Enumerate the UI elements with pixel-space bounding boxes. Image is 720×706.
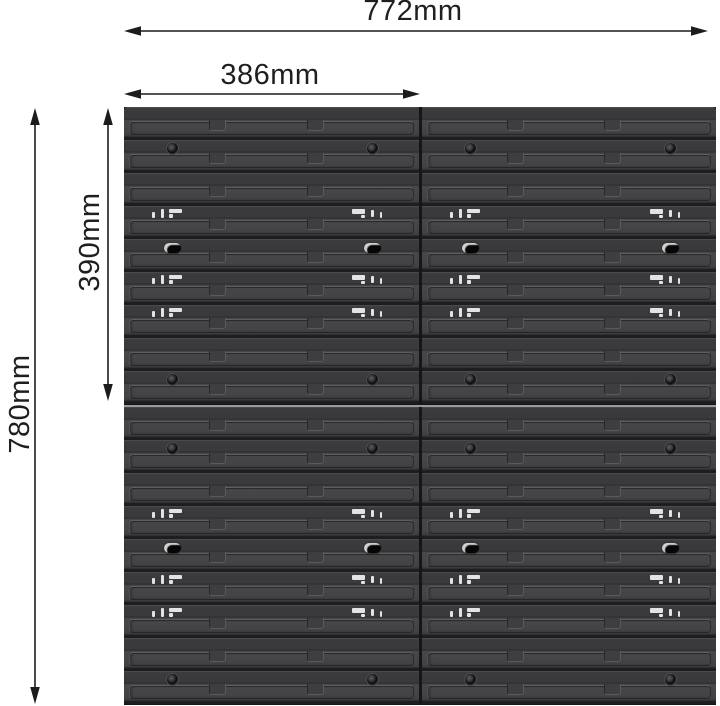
slat-groove xyxy=(129,319,414,333)
clip-highlight-group xyxy=(650,207,690,219)
screw-hole xyxy=(367,374,378,385)
keyhole-slot xyxy=(164,543,181,553)
clip-highlight xyxy=(169,580,173,584)
slat-notch xyxy=(209,219,226,230)
slat-plain xyxy=(124,473,419,506)
slat-screws xyxy=(422,671,717,704)
keyhole-slot xyxy=(164,243,181,253)
clip-highlight xyxy=(169,280,173,284)
keyhole-slot xyxy=(462,543,479,553)
slat-notch xyxy=(209,585,226,596)
clip-highlight xyxy=(371,609,374,616)
clip-highlight xyxy=(352,608,365,613)
slat-groove xyxy=(427,421,712,435)
slat-notch xyxy=(604,585,621,596)
slat-screws xyxy=(124,671,419,704)
slat-groove xyxy=(427,520,712,534)
clip-highlight xyxy=(669,576,672,583)
slat-plain xyxy=(422,338,717,371)
slat-notch xyxy=(209,552,226,563)
clip-highlight xyxy=(467,613,471,617)
slat-notch xyxy=(209,453,226,464)
slat-groove xyxy=(129,685,414,699)
screw-hole xyxy=(665,674,676,685)
slat-notch xyxy=(604,684,621,695)
clip-highlight xyxy=(669,276,672,283)
slat-groove xyxy=(427,652,712,666)
slat-notch xyxy=(209,186,226,197)
screw-hole xyxy=(465,674,476,685)
slat-clips xyxy=(124,605,419,638)
slat-notch xyxy=(307,453,324,464)
slat-notch xyxy=(209,285,226,296)
slat-notch xyxy=(307,318,324,329)
clip-highlight xyxy=(678,278,680,284)
slat-clips xyxy=(422,572,717,605)
slat-screws xyxy=(124,371,419,404)
slat-groove xyxy=(427,385,712,399)
panel-plate xyxy=(422,407,717,704)
slat-notch xyxy=(507,351,524,362)
clip-highlight xyxy=(459,275,462,284)
mounting-tab xyxy=(124,374,125,382)
slat-notch xyxy=(209,519,226,530)
clip-highlight xyxy=(659,215,663,218)
slat-groove xyxy=(427,253,712,267)
slat-groove xyxy=(129,553,414,567)
slat-notch xyxy=(209,618,226,629)
slat-notch xyxy=(307,618,324,629)
slat-notch xyxy=(307,186,324,197)
clip-highlight xyxy=(361,614,365,617)
slat-clips xyxy=(124,506,419,539)
clip-highlight-group xyxy=(152,606,192,618)
slat-groove xyxy=(129,352,414,366)
clip-highlight xyxy=(371,510,374,517)
clip-highlight-group xyxy=(450,573,490,585)
clip-highlight xyxy=(459,575,462,584)
clip-highlight xyxy=(371,309,374,316)
clip-highlight xyxy=(467,209,480,213)
slat-notch xyxy=(507,384,524,395)
clip-highlight-group xyxy=(650,573,690,585)
slat-notch xyxy=(307,384,324,395)
clip-highlight xyxy=(678,512,680,518)
clip-highlight-group xyxy=(152,507,192,519)
clip-highlight xyxy=(371,576,374,583)
slat-groove xyxy=(129,454,414,468)
clip-highlight xyxy=(380,578,382,584)
clip-highlight xyxy=(169,313,173,317)
slat-groove xyxy=(129,586,414,600)
clip-highlight xyxy=(678,311,680,317)
slat-notch xyxy=(507,120,524,131)
slat-notch xyxy=(307,684,324,695)
total-height-label: 780mm xyxy=(5,314,35,494)
slat-groove xyxy=(427,154,712,168)
clip-highlight xyxy=(450,611,453,617)
clip-highlight xyxy=(161,608,164,617)
slat-notch xyxy=(507,153,524,164)
slat-screws xyxy=(124,440,419,473)
slat-groove xyxy=(427,553,712,567)
clip-highlight xyxy=(467,275,480,279)
clip-highlight xyxy=(650,575,663,580)
clip-highlight xyxy=(152,212,155,218)
clip-highlight xyxy=(669,609,672,616)
keyhole-slot xyxy=(662,543,679,553)
slat-notch xyxy=(604,384,621,395)
slat-notch xyxy=(604,186,621,197)
clip-highlight-group xyxy=(650,273,690,285)
slat-plain xyxy=(422,473,717,506)
clip-highlight-group xyxy=(450,273,490,285)
clip-highlight xyxy=(650,608,663,613)
slat-clips xyxy=(422,206,717,239)
slat-notch xyxy=(307,285,324,296)
clip-highlight xyxy=(659,515,663,518)
clip-highlight-group xyxy=(450,306,490,318)
clip-highlight-group xyxy=(152,573,192,585)
clip-highlight-group xyxy=(152,207,192,219)
clip-highlight xyxy=(161,575,164,584)
screw-hole xyxy=(167,443,178,454)
slat-groove xyxy=(129,187,414,201)
plate-row xyxy=(124,407,716,705)
clip-highlight xyxy=(669,210,672,217)
slat-screws xyxy=(422,371,717,404)
slat-groove xyxy=(129,421,414,435)
slat-slots xyxy=(124,539,419,572)
slat-notch xyxy=(507,552,524,563)
slat-notch xyxy=(604,252,621,263)
product-dimension-diagram: 772mm 386mm 780mm 390mm xyxy=(0,0,720,706)
clip-highlight xyxy=(169,509,182,513)
slat-groove xyxy=(427,619,712,633)
slat-screws xyxy=(422,140,717,173)
slat-notch xyxy=(307,420,324,431)
slat-clips xyxy=(124,206,419,239)
keyhole-slot xyxy=(364,243,381,253)
total-width-label: 772mm xyxy=(323,0,503,26)
clip-highlight xyxy=(459,509,462,518)
screw-hole xyxy=(367,443,378,454)
slat-groove xyxy=(427,187,712,201)
slat-slots xyxy=(422,539,717,572)
slat-slots xyxy=(124,239,419,272)
clip-highlight xyxy=(169,608,182,612)
slat-plain xyxy=(124,638,419,671)
clip-highlight-group xyxy=(450,606,490,618)
mounting-tab xyxy=(124,443,125,451)
slat-clips xyxy=(124,272,419,305)
clip-highlight xyxy=(161,275,164,284)
screw-hole xyxy=(465,443,476,454)
clip-highlight xyxy=(169,275,182,279)
panel-plate xyxy=(124,107,419,404)
clip-highlight xyxy=(450,578,453,584)
slat-notch xyxy=(507,219,524,230)
panel-height-label: 390mm xyxy=(75,152,105,332)
plate-row xyxy=(124,107,716,405)
slat-notch xyxy=(307,252,324,263)
slat-notch xyxy=(507,453,524,464)
slat-notch xyxy=(507,318,524,329)
slat-screws xyxy=(124,140,419,173)
slat-notch xyxy=(604,318,621,329)
clip-highlight xyxy=(352,509,365,514)
slat-groove xyxy=(129,220,414,234)
clip-highlight xyxy=(450,512,453,518)
slat-notch xyxy=(307,585,324,596)
clip-highlight xyxy=(669,510,672,517)
slat-notch xyxy=(507,585,524,596)
slat-groove xyxy=(427,487,712,501)
slat-groove xyxy=(129,253,414,267)
clip-highlight-group xyxy=(152,273,192,285)
slat-groove xyxy=(427,586,712,600)
slat-plain xyxy=(422,107,717,140)
slat-groove xyxy=(427,121,712,135)
slat-notch xyxy=(507,684,524,695)
slat-plain xyxy=(422,638,717,671)
slat-clips xyxy=(422,305,717,338)
clip-highlight xyxy=(678,611,680,617)
slat-plain xyxy=(422,407,717,440)
clip-highlight xyxy=(152,578,155,584)
clip-highlight xyxy=(450,212,453,218)
slat-groove xyxy=(427,319,712,333)
slat-notch xyxy=(507,651,524,662)
slat-groove xyxy=(427,286,712,300)
panel-wall xyxy=(124,107,716,705)
slat-notch xyxy=(209,120,226,131)
clip-highlight xyxy=(169,214,173,218)
slat-notch xyxy=(209,153,226,164)
slat-screws xyxy=(422,440,717,473)
slat-notch xyxy=(507,285,524,296)
slat-notch xyxy=(604,552,621,563)
clip-highlight-group xyxy=(650,606,690,618)
slat-groove xyxy=(427,220,712,234)
slat-plain xyxy=(124,338,419,371)
slat-notch xyxy=(604,285,621,296)
clip-highlight xyxy=(380,512,382,518)
clip-highlight-group xyxy=(352,573,392,585)
slat-groove xyxy=(129,121,414,135)
clip-highlight xyxy=(650,275,663,280)
clip-highlight xyxy=(361,281,365,284)
slat-clips xyxy=(422,506,717,539)
slat-plain xyxy=(422,173,717,206)
slat-notch xyxy=(209,651,226,662)
clip-highlight xyxy=(659,281,663,284)
slat-notch xyxy=(209,318,226,329)
slat-notch xyxy=(307,552,324,563)
clip-highlight xyxy=(352,308,365,313)
clip-highlight-group xyxy=(352,306,392,318)
clip-highlight xyxy=(352,575,365,580)
clip-highlight-group xyxy=(450,507,490,519)
clip-highlight xyxy=(467,509,480,513)
clip-highlight xyxy=(169,613,173,617)
slat-plain xyxy=(124,173,419,206)
slat-notch xyxy=(604,618,621,629)
slat-notch xyxy=(307,153,324,164)
keyhole-slot xyxy=(364,543,381,553)
clip-highlight xyxy=(650,308,663,313)
clip-highlight xyxy=(678,212,680,218)
clip-highlight xyxy=(371,210,374,217)
screw-hole xyxy=(465,374,476,385)
screw-hole xyxy=(167,374,178,385)
slat-notch xyxy=(307,486,324,497)
slat-notch xyxy=(604,519,621,530)
slat-notch xyxy=(507,618,524,629)
slat-notch xyxy=(604,486,621,497)
slat-notch xyxy=(209,420,226,431)
slat-clips xyxy=(124,305,419,338)
slat-notch xyxy=(209,486,226,497)
clip-highlight xyxy=(380,212,382,218)
panel-plate xyxy=(422,107,717,404)
slat-groove xyxy=(427,352,712,366)
slat-groove xyxy=(427,685,712,699)
clip-highlight xyxy=(361,314,365,317)
clip-highlight xyxy=(161,308,164,317)
clip-highlight-group xyxy=(352,507,392,519)
slat-notch xyxy=(604,153,621,164)
slat-notch xyxy=(507,519,524,530)
slat-groove xyxy=(129,154,414,168)
slat-notch xyxy=(307,120,324,131)
clip-highlight xyxy=(169,209,182,213)
clip-highlight xyxy=(450,278,453,284)
screw-hole xyxy=(167,674,178,685)
clip-highlight xyxy=(152,611,155,617)
slat-plain xyxy=(124,107,419,140)
clip-highlight xyxy=(659,614,663,617)
slat-notch xyxy=(209,384,226,395)
clip-highlight xyxy=(352,209,365,214)
slat-notch xyxy=(604,651,621,662)
clip-highlight-group xyxy=(352,207,392,219)
screw-hole xyxy=(665,443,676,454)
slat-notch xyxy=(209,252,226,263)
clip-highlight-group xyxy=(450,207,490,219)
screw-hole xyxy=(367,674,378,685)
clip-highlight xyxy=(678,578,680,584)
screw-hole xyxy=(167,143,178,154)
clip-highlight xyxy=(467,580,471,584)
slat-groove xyxy=(427,454,712,468)
clip-highlight-group xyxy=(352,273,392,285)
slat-clips xyxy=(422,605,717,638)
clip-highlight xyxy=(152,311,155,317)
clip-highlight xyxy=(361,515,365,518)
slat-notch xyxy=(507,420,524,431)
slat-notch xyxy=(307,219,324,230)
clip-highlight xyxy=(467,313,471,317)
slat-clips xyxy=(422,272,717,305)
mounting-tab xyxy=(124,242,125,250)
slat-notch xyxy=(307,651,324,662)
screw-hole xyxy=(465,143,476,154)
slat-notch xyxy=(507,486,524,497)
clip-highlight-group xyxy=(152,306,192,318)
clip-highlight xyxy=(467,575,480,579)
slat-clips xyxy=(124,572,419,605)
slat-notch xyxy=(604,420,621,431)
clip-highlight xyxy=(459,209,462,218)
slat-notch xyxy=(604,453,621,464)
slat-notch xyxy=(209,684,226,695)
slat-notch xyxy=(604,351,621,362)
clip-highlight xyxy=(161,509,164,518)
clip-highlight xyxy=(169,308,182,312)
slat-notch xyxy=(307,351,324,362)
slat-notch xyxy=(507,252,524,263)
screw-hole xyxy=(665,374,676,385)
clip-highlight xyxy=(659,581,663,584)
mounting-tab xyxy=(124,542,125,550)
panel-width-label: 386mm xyxy=(180,60,360,90)
clip-highlight xyxy=(169,575,182,579)
slat-groove xyxy=(129,487,414,501)
mounting-tab xyxy=(124,143,125,151)
clip-highlight xyxy=(659,314,663,317)
slat-groove xyxy=(129,652,414,666)
clip-highlight xyxy=(352,275,365,280)
clip-highlight xyxy=(459,308,462,317)
clip-highlight xyxy=(380,611,382,617)
clip-highlight xyxy=(467,514,471,518)
slat-notch xyxy=(209,351,226,362)
keyhole-slot xyxy=(662,243,679,253)
screw-hole xyxy=(367,143,378,154)
clip-highlight xyxy=(467,608,480,612)
clip-highlight-group xyxy=(650,306,690,318)
clip-highlight xyxy=(152,512,155,518)
slat-notch xyxy=(507,186,524,197)
clip-highlight xyxy=(380,278,382,284)
slat-groove xyxy=(129,286,414,300)
clip-highlight-group xyxy=(352,606,392,618)
slat-notch xyxy=(604,219,621,230)
slat-groove xyxy=(129,385,414,399)
clip-highlight xyxy=(669,309,672,316)
clip-highlight xyxy=(467,214,471,218)
mounting-tab xyxy=(124,674,125,682)
clip-highlight xyxy=(371,276,374,283)
clip-highlight-group xyxy=(650,507,690,519)
slat-plain xyxy=(124,407,419,440)
clip-highlight xyxy=(650,209,663,214)
clip-highlight xyxy=(361,215,365,218)
clip-highlight xyxy=(450,311,453,317)
slat-notch xyxy=(307,519,324,530)
slat-notch xyxy=(604,120,621,131)
clip-highlight xyxy=(169,514,173,518)
keyhole-slot xyxy=(462,243,479,253)
clip-highlight xyxy=(650,509,663,514)
clip-highlight xyxy=(161,209,164,218)
clip-highlight xyxy=(467,280,471,284)
clip-highlight xyxy=(467,308,480,312)
clip-highlight xyxy=(152,278,155,284)
slat-slots xyxy=(422,239,717,272)
slat-groove xyxy=(129,520,414,534)
